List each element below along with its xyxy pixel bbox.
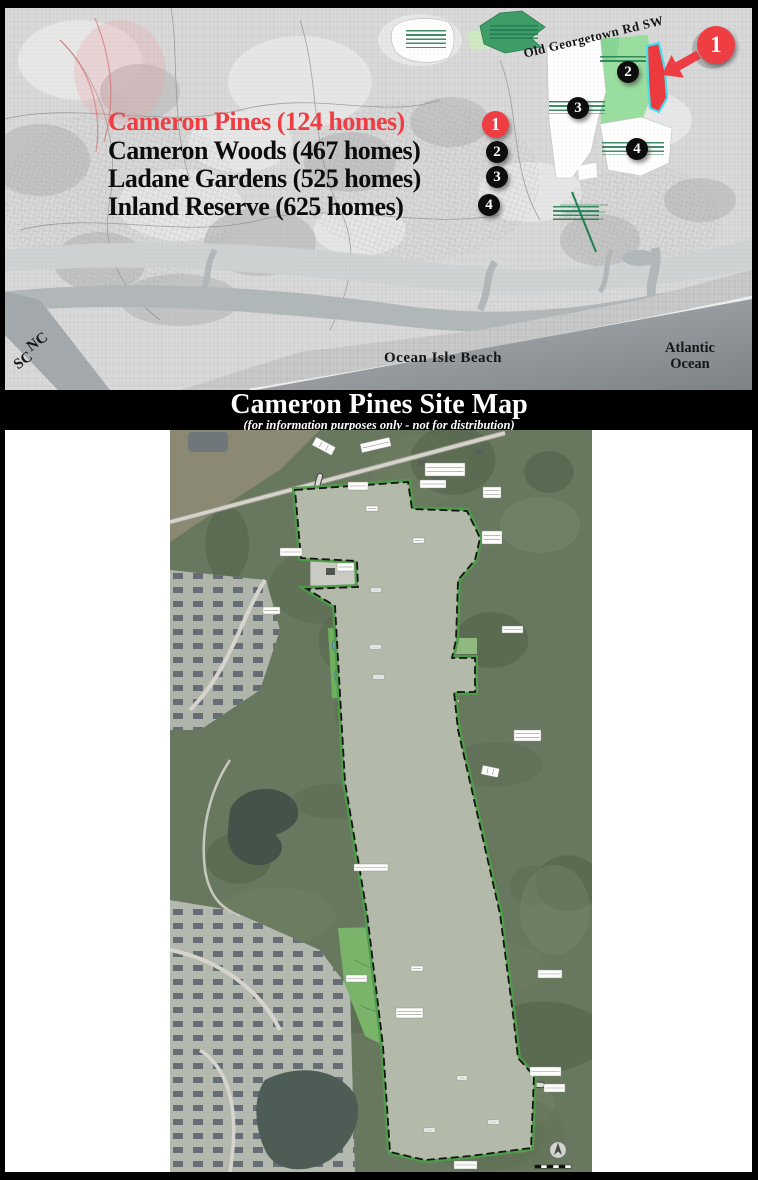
site-plan-art [170,430,592,1172]
legend-marker-4: 4 [478,194,500,216]
border-left [0,0,5,1180]
border-right [752,0,758,1180]
legend-marker-3: 3 [486,166,508,188]
map-marker-1: 1 [697,26,735,64]
legend-item-cameron-woods: Cameron Woods (467 homes) [108,137,420,165]
north-arrow [550,1142,567,1159]
borrow-pond [188,432,228,452]
map-marker-2: 2 [617,61,639,83]
map-marker-4: 4 [626,138,648,160]
border-bottom [0,1172,758,1180]
ocean-label: Atlantic Ocean [655,340,725,372]
parcel-sliver [578,163,597,180]
legend-marker-1: 1 [482,111,509,138]
legend-marker-2: 2 [486,141,508,163]
page-title: Cameron Pines Site Map [0,391,758,419]
flyer-page: Old Georgetown Rd SW NC SC Ocean Isle Be… [0,0,758,1180]
legend-item-inland-reserve: Inland Reserve (625 homes) [108,193,403,221]
parcel-annotation [406,30,446,48]
parcel-annotation [490,25,538,41]
beach-label: Ocean Isle Beach [384,350,502,367]
parcel-annotation [553,206,599,221]
border-top [0,0,758,8]
site-plan-aerial [170,430,592,1172]
scale-bar [535,1165,571,1168]
inlet-lake [622,250,658,266]
legend-item-cameron-pines: Cameron Pines (124 homes) [108,108,405,136]
legend-item-ladane-gardens: Ladane Gardens (525 homes) [108,165,421,193]
title-band: Cameron Pines Site Map (for information … [0,390,758,430]
map-marker-3: 3 [567,97,589,119]
overview-map: Old Georgetown Rd SW NC SC Ocean Isle Be… [0,0,758,390]
